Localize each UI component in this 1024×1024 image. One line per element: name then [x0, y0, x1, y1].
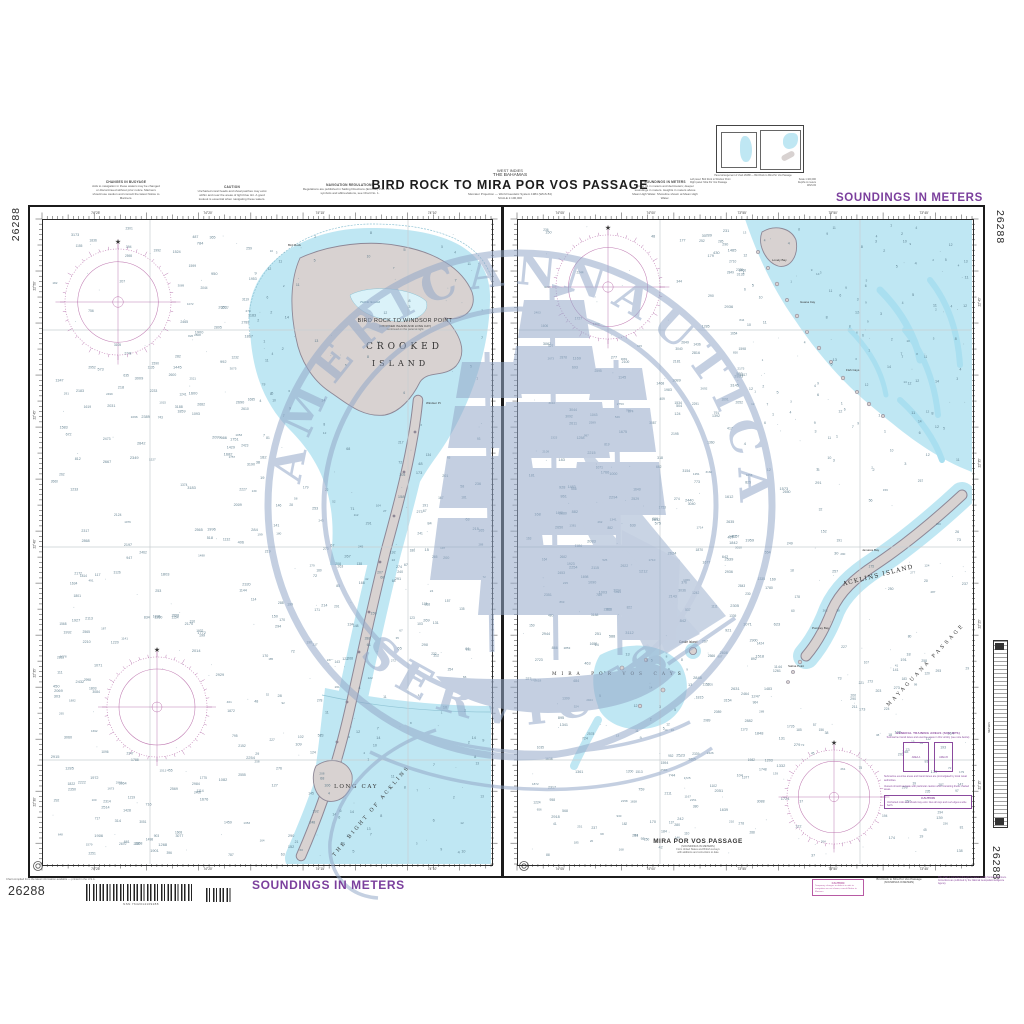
label-bird-rock: Bird Rock	[288, 243, 301, 247]
training-areas-para2: Vessels should navigate with particular …	[884, 785, 972, 792]
label-crooked: CROOKED	[366, 342, 443, 352]
inset-caption-line1: Panel arrangement of chart 26288 — Bird …	[690, 174, 816, 177]
graticule-label: 74°10'	[428, 867, 437, 871]
graticule-label: 22°50'	[32, 281, 36, 290]
inset-left-panel	[721, 132, 757, 168]
graticule-label: 22°35'	[977, 458, 981, 467]
left-inset-sub2: Continued on the panel at right	[338, 328, 472, 331]
soundings-banner-top: SOUNDINGS IN METERS	[836, 192, 983, 204]
footer-edition-block: Bird Rock to Mira Por Vos Passage (SOUND…	[866, 877, 932, 884]
graticule-label: 22°45'	[32, 410, 36, 419]
training-areas-para1: Submarine exercise areas and transit lan…	[884, 775, 972, 782]
note-changes-in-buoyage: CHANGES IN BUOYAGE Aids to navigation in…	[92, 180, 160, 201]
left-panel-border	[42, 219, 493, 866]
training-areas-note: GENERAL TRAINING AREAS (SUB OPS) Submari…	[884, 732, 972, 809]
chart-number-bottom-left: 26288	[8, 884, 45, 898]
footer-chart-sub: (SOUNDINGS IN METERS)	[866, 881, 932, 884]
note-body: Uncharted coral heads and shoal patches …	[196, 190, 268, 202]
label-island: ISLAND	[372, 359, 429, 368]
training-area-box-b: AREA B	[934, 742, 953, 772]
right-panel-title: MIRA POR VOS PASSAGE	[628, 838, 768, 845]
label-lovely-bay: Lovely Bay	[772, 258, 787, 262]
label-long-cay: LONG CAY	[334, 784, 378, 790]
graticule-label: 73°55'	[738, 211, 747, 215]
graticule-label: 74°05'	[556, 211, 565, 215]
label-salina-point: Salina Point	[788, 664, 804, 668]
training-area-box-a: AREA A	[903, 742, 929, 772]
training-area-a-label: AREA A	[912, 756, 921, 759]
training-area-b-label: AREA B	[939, 756, 948, 759]
label-mira-por-vos-cays: MIRA POR VOS CAYS	[552, 672, 686, 677]
title-block: WEST INDIES THE BAHAMAS BIRD ROCK TO MIR…	[360, 168, 660, 200]
soundings-banner-bottom: SOUNDINGS IN METERS	[252, 878, 405, 892]
inset-caption: Panel arrangement of chart 26288 — Bird …	[690, 174, 816, 187]
label-guana-cay: Guana Cay	[800, 300, 815, 304]
meters-scale-strip	[993, 640, 1008, 828]
graticule-label: 74°25'	[91, 211, 100, 215]
label-castle-island: Castle Island	[679, 640, 697, 644]
graticule-label: 73°55'	[738, 867, 747, 871]
graticule-label: 22°45'	[977, 297, 981, 306]
chart-sheet: ★★25394784185292912224125923894221071996…	[0, 0, 1024, 1024]
barcode-caption: NSN 7642014109288	[88, 902, 194, 906]
graticule-label: 22°35'	[32, 668, 36, 677]
graticule-label: 22°30'	[32, 797, 36, 806]
graticule-label: 22°25'	[977, 620, 981, 629]
barcode-small	[206, 888, 232, 902]
graticule-label: 73°50'	[829, 867, 838, 871]
meters-scale-label: METERS	[988, 722, 991, 733]
graticule-label: 74°05'	[556, 867, 565, 871]
inset-caption-left2: Right panel: Mira Por Vos Passage	[690, 181, 730, 184]
graticule-label: 74°20'	[203, 867, 212, 871]
training-areas-subheading: Submarine transit lanes and exercise are…	[884, 736, 972, 739]
graticule-label: 74°10'	[428, 211, 437, 215]
caution-body: Uncharted rocks and shoals may exist. Gi…	[887, 801, 969, 807]
caution-body: Temporary changes or defects in aids to …	[815, 885, 861, 894]
footer-correction-note: This chart is corrected through the late…	[938, 877, 1008, 886]
graticule-label: 73°50'	[829, 211, 838, 215]
label-fish-cays: Fish Cays	[846, 368, 859, 372]
graticule-label: 73°45'	[920, 867, 929, 871]
chart-number-bottom-right: 26288	[990, 846, 1002, 880]
panel-layout-inset	[716, 125, 804, 173]
label-turtle-sound: Turtle Sound	[360, 300, 380, 304]
footer-compilation-note: Chart compiled from the latest informati…	[6, 878, 95, 881]
right-panel-sub3: with additions and corrections to date	[628, 851, 768, 854]
graticule-label: 74°00'	[647, 867, 656, 871]
graticule-label: 22°40'	[32, 539, 36, 548]
graticule-label: 22°15'	[977, 781, 981, 790]
graticule-label: 74°20'	[203, 211, 212, 215]
panel-divider	[501, 205, 504, 878]
note-body: Aids to navigation in these waters may b…	[92, 185, 160, 201]
right-panel-title-block: MIRA POR VOS PASSAGE (SOUNDINGS IN METER…	[628, 838, 768, 854]
graticule-label: 74°15'	[316, 211, 325, 215]
graticule-label: 74°00'	[647, 211, 656, 215]
graticule-label: 74°25'	[91, 867, 100, 871]
barcode	[86, 884, 194, 901]
chart-number-top-right: 26288	[994, 210, 1006, 244]
inset-caption-right3: WGS 84	[798, 184, 816, 187]
caution-box-right: CAUTION Uncharted rocks and shoals may e…	[884, 795, 972, 809]
chart-number-top-left: 26288	[10, 207, 22, 241]
caution-box-bottom: CAUTION Temporary changes or defects in …	[812, 879, 864, 896]
label-pompey-bay: Pompey Bay	[812, 626, 829, 630]
label-jamaica-bay: Jamaica Bay	[862, 548, 879, 552]
graticule-label: 74°15'	[316, 867, 325, 871]
label-windsor-point: Windsor Pt	[426, 401, 441, 405]
graticule-label: 73°45'	[920, 211, 929, 215]
chart-subtitle2: SCALE 1:100,000	[360, 196, 660, 200]
left-inset-title-block: BIRD ROCK TO WINDSOR POINT (CROOKED ISLA…	[338, 318, 472, 331]
note-caution-top: CAUTION Uncharted coral heads and shoal …	[196, 185, 268, 202]
chart-title: BIRD ROCK TO MIRA POR VOS PASSAGE	[360, 178, 660, 192]
inset-right-panel	[760, 130, 801, 170]
